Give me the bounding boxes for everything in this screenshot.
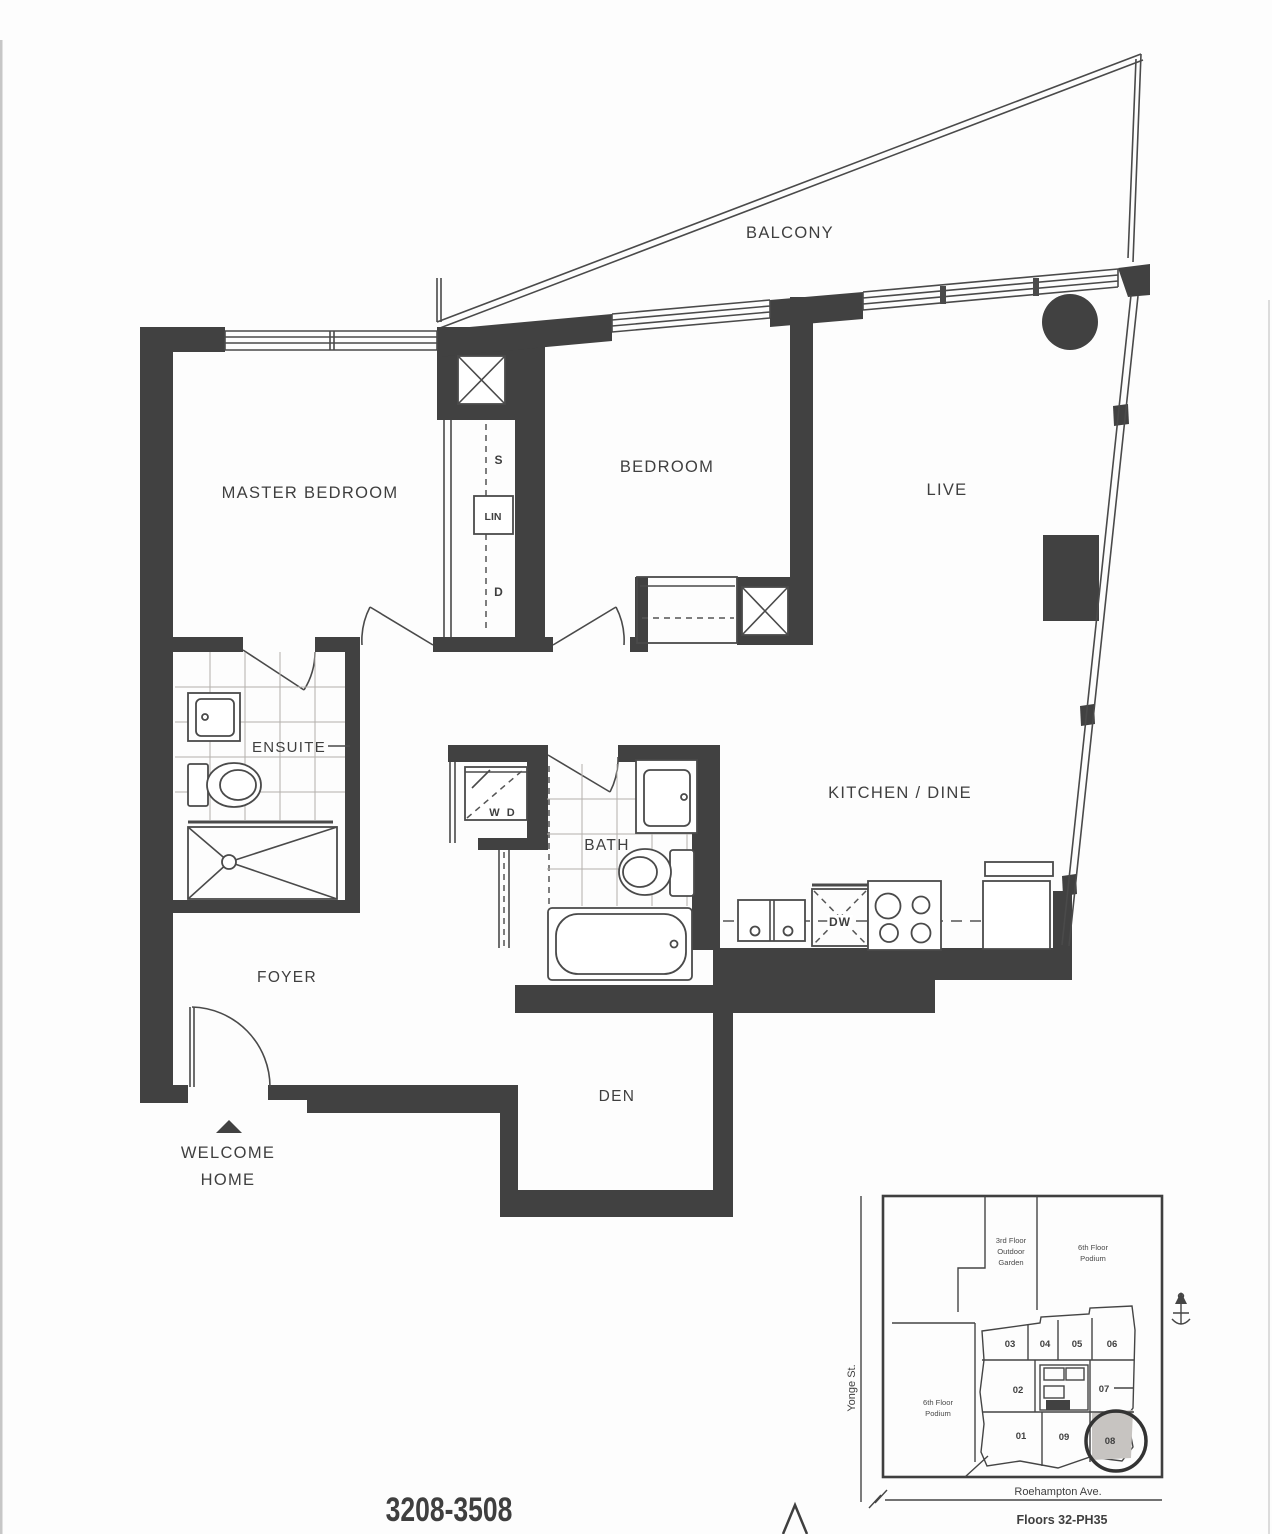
bedroom-closet (637, 577, 737, 643)
hall-pocket-door (499, 850, 509, 948)
closet-shelf-label: S (494, 453, 503, 467)
foyer-south-wall (268, 1085, 517, 1113)
bath-label: BATH (584, 837, 629, 854)
master-closet: S LIN D (474, 424, 513, 633)
wd-closet-north-wall (448, 745, 527, 762)
ensuite-vanity-sink (188, 693, 240, 741)
podium-left-label-2: Podium (925, 1409, 951, 1418)
unit-03: 03 (1005, 1339, 1016, 1350)
shaft-x-symbol-bedroom (742, 587, 788, 635)
unit-04: 04 (1040, 1339, 1051, 1350)
bath-door (548, 755, 618, 792)
entry-arrow-icon (216, 1120, 242, 1133)
ensuite-door (243, 650, 315, 690)
master-window (225, 331, 437, 350)
garden-label-1: 3rd Floor (996, 1236, 1027, 1245)
unit-number: 3208-3508 (386, 1491, 513, 1529)
live-label: LIVE (927, 481, 968, 499)
scan-edge-right (1268, 300, 1270, 1534)
key-plan: 3rd Floor Outdoor Garden 6th Floor Podiu… (846, 1196, 1190, 1527)
unit-07: 07 (1099, 1384, 1110, 1395)
welcome-label-line2: HOME (201, 1171, 256, 1189)
floor-plan: S LIN D (140, 54, 1150, 1217)
bath-vanity-sink (636, 760, 697, 833)
unit-06: 06 (1107, 1339, 1118, 1350)
closet-linen-label: LIN (485, 511, 502, 523)
washer-dryer-label: W D (489, 807, 516, 819)
unit-05: 05 (1072, 1339, 1083, 1350)
floorplan-page: S LIN D (0, 0, 1272, 1534)
foyer-label: FOYER (257, 969, 317, 986)
ensuite-shower (188, 822, 337, 899)
closet-east-wall (515, 330, 545, 650)
master-closet-door (444, 420, 451, 637)
dishwasher: DW (812, 885, 868, 946)
roehampton-label: Roehampton Ave. (1014, 1486, 1101, 1498)
balcony-label: BALCONY (746, 224, 834, 242)
podium-right-label-1: 6th Floor (1078, 1243, 1108, 1252)
shaft-x-symbol-top (458, 356, 505, 404)
dishwasher-label: DW (829, 915, 851, 929)
right-wall-column (1043, 535, 1099, 621)
ensuite-north-wall-right (315, 637, 360, 652)
ensuite-toilet (188, 763, 261, 807)
yonge-street-label: Yonge St. (846, 1364, 858, 1411)
floorplan-drawing: S LIN D (0, 0, 1272, 1534)
north-arrow-icon (1172, 1292, 1190, 1324)
bedroom-door (553, 607, 624, 645)
live-window-mullions (943, 278, 1036, 304)
master-bedroom-label: MASTER BEDROOM (222, 484, 399, 502)
bedroom-label: BEDROOM (620, 458, 714, 476)
bath-south-wall (515, 985, 737, 1013)
corridor-wall (433, 637, 553, 652)
welcome-home: WELCOME HOME (181, 1120, 275, 1189)
washer-dryer: W D (465, 767, 527, 820)
kitchen-dine-label: KITCHEN / DINE (828, 784, 972, 802)
windows (225, 269, 1138, 946)
entry-door (190, 1007, 270, 1087)
wd-closet-east-wall (527, 745, 548, 850)
unit-02: 02 (1013, 1385, 1024, 1396)
unit-01: 01 (1016, 1431, 1027, 1442)
corner-top-right (1118, 264, 1150, 297)
welcome-label-line1: WELCOME (181, 1144, 275, 1162)
bedroom-east-wall (790, 297, 813, 645)
unit-08-highlighted: 08 (1105, 1436, 1116, 1447)
keyplan-core (1040, 1365, 1088, 1410)
ensuite-label: ENSUITE (252, 739, 326, 756)
bathtub (548, 908, 692, 980)
scan-edge-left (0, 40, 3, 1534)
bath-fixtures (548, 760, 697, 980)
fridge (983, 862, 1053, 949)
ensuite-north-wall-left (173, 637, 243, 652)
den-label: DEN (599, 1088, 636, 1105)
master-bedroom-door (362, 607, 433, 645)
wd-closet-door (450, 762, 455, 843)
floors-note-label: Floors 32-PH35 (1016, 1513, 1107, 1527)
closet-drawers-label: D (494, 585, 504, 599)
garden-label-3: Garden (998, 1258, 1023, 1267)
street-break-marks (869, 1490, 887, 1508)
bath-toilet (619, 849, 694, 896)
shower-south-wall (173, 900, 350, 913)
unit-range-label: 3208-3508 (386, 1491, 513, 1529)
stove (868, 881, 941, 950)
unit-09: 09 (1059, 1432, 1070, 1443)
kitchen-sink (738, 900, 805, 941)
podium-right-label-2: Podium (1080, 1254, 1106, 1263)
exterior-wall-under-balcony-b (770, 292, 863, 327)
podium-left-label-1: 6th Floor (923, 1398, 953, 1407)
garden-label-2: Outdoor (997, 1247, 1025, 1256)
kitchen-appliances: DW (723, 862, 1053, 950)
bedroom-window (612, 300, 770, 332)
ensuite-east-wall (345, 650, 360, 913)
builder-logo-partial-icon (783, 1505, 807, 1534)
kitchen-south-and-den-east-wall (713, 948, 1072, 1217)
round-column (1042, 294, 1098, 350)
wd-closet-south-stub (478, 838, 535, 850)
